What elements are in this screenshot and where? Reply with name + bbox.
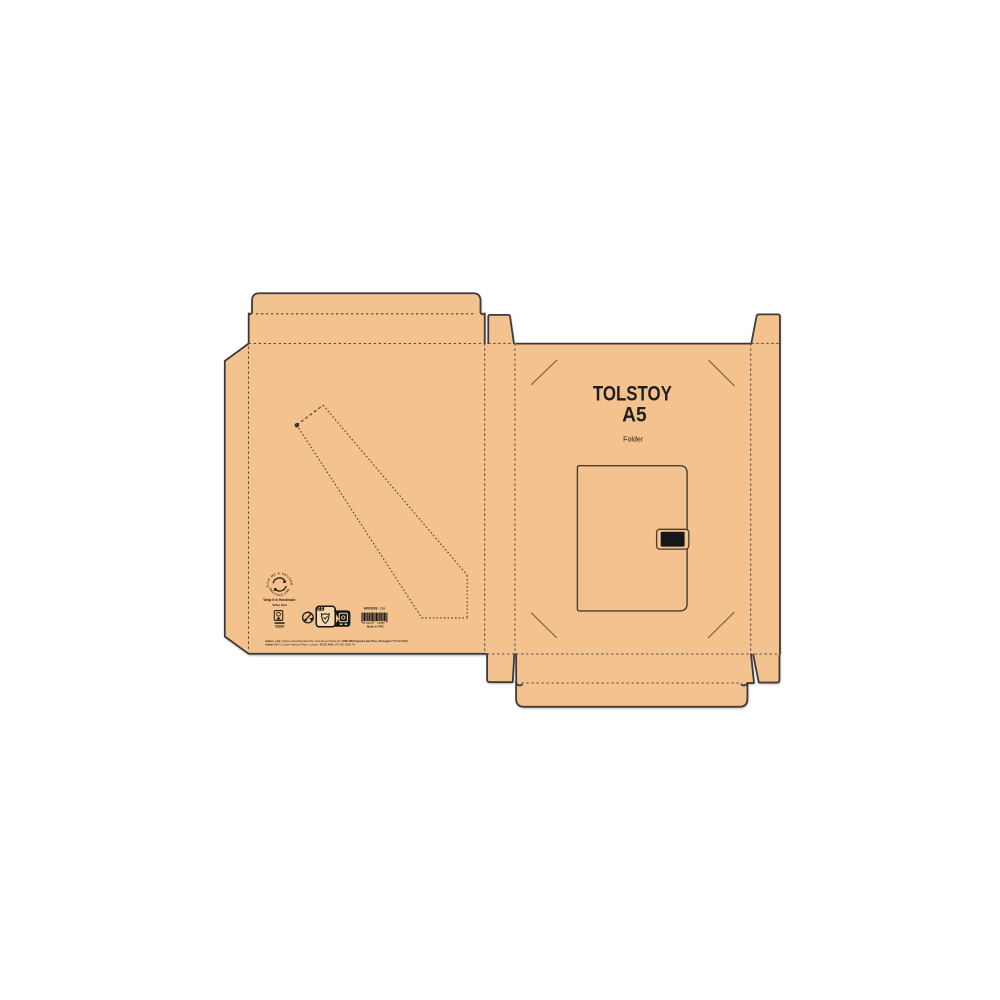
svg-text:- 11A: - 11A [378,607,386,611]
svg-text:TOLSTOY: TOLSTOY [593,383,672,406]
svg-text:A5: A5 [622,403,647,426]
svg-text:Folder: Folder [623,436,644,443]
svg-text:Atelier UK 71 Upper Harbour Pl: Atelier UK 71 Upper Harbour Place, Londo… [265,643,355,647]
svg-text:Made in PRC: Made in PRC [367,625,384,629]
svg-text:Why Not: Why Not [272,603,287,607]
svg-text:AP03003: AP03003 [364,607,378,611]
svg-text:Wrap it in Handmade: Wrap it in Handmade [263,598,295,602]
